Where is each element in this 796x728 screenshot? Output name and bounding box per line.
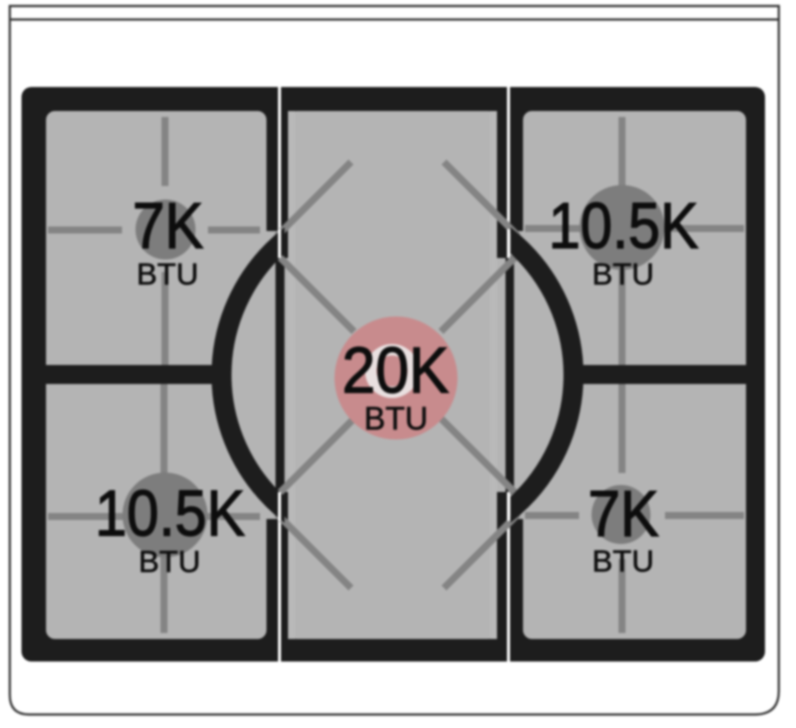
svg-text:10.5K: 10.5K	[549, 189, 699, 262]
svg-text:BTU: BTU	[592, 544, 654, 579]
svg-text:20K: 20K	[342, 334, 449, 407]
svg-text:BTU: BTU	[364, 401, 428, 437]
svg-text:BTU: BTU	[139, 544, 201, 579]
svg-text:7K: 7K	[588, 477, 659, 550]
svg-text:BTU: BTU	[592, 257, 654, 292]
svg-text:BTU: BTU	[137, 257, 199, 292]
svg-text:7K: 7K	[133, 189, 204, 262]
svg-text:10.5K: 10.5K	[95, 477, 245, 550]
